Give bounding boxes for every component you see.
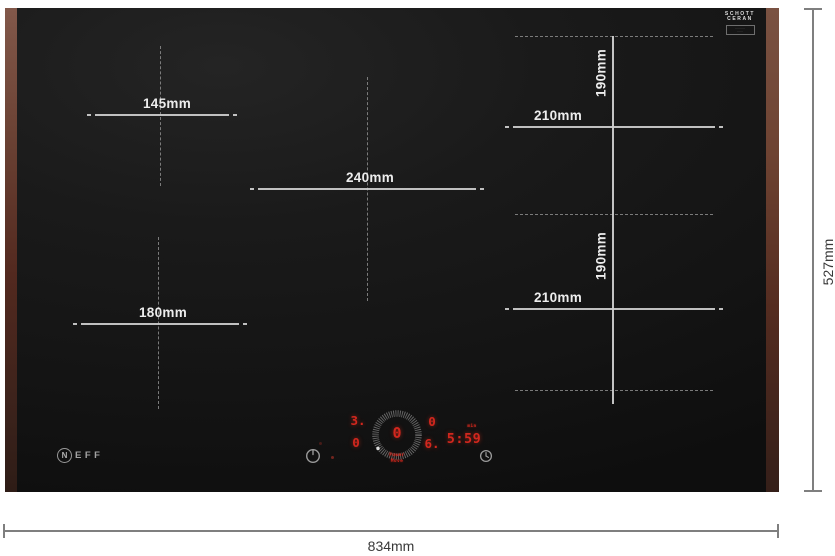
zone-measure-line (258, 188, 476, 190)
flex-zone-top-dashed-line (515, 36, 713, 37)
left-zone-level-top: 3. (345, 414, 371, 427)
neff-logo-text: EFF (75, 450, 103, 461)
flex-top-width-line (513, 126, 715, 128)
dimension-diagram: SCHOTT CERAN ·········· ······ 145mm 180… (0, 0, 835, 556)
left-zone-level-bottom: 0 (343, 436, 369, 449)
left-copper-trim (5, 8, 17, 492)
hob-body: SCHOTT CERAN ·········· ······ 145mm 180… (5, 8, 779, 492)
width-dimension-label: 834mm (341, 538, 441, 554)
dial-caption-line1: Power (373, 453, 421, 459)
zone-size-label: 240mm (346, 170, 394, 185)
flex-top-height-label: 190mm (594, 49, 609, 97)
schott-ceran-badge: SCHOTT CERAN ·········· ······ (720, 12, 760, 35)
flex-zone-height-line (612, 36, 614, 404)
flex-zone-middle-dashed-line (515, 214, 713, 215)
zone-measure-line (95, 114, 229, 116)
flex-top-width-label: 210mm (534, 108, 582, 123)
ceran-text: CERAN (720, 17, 760, 22)
clock-icon (479, 449, 493, 463)
zone-measure-line (81, 323, 239, 325)
flex-bottom-width-label: 210mm (534, 290, 582, 305)
height-dimension-line (812, 8, 814, 492)
right-zone-level-top: 0 (419, 415, 445, 428)
flex-bottom-height-label: 190mm (594, 232, 609, 280)
indicator-dot (319, 442, 322, 445)
timer-unit-label: min (461, 424, 483, 430)
neff-logo-n-icon: N (57, 448, 72, 463)
right-copper-trim (766, 8, 779, 492)
timer-display: 5:59 (441, 432, 487, 446)
width-dimension-line (3, 530, 779, 532)
flex-zone-bottom-dashed-line (515, 390, 713, 391)
power-icon (304, 447, 322, 465)
micro-print-box: ·········· ······ (726, 25, 755, 35)
dial-value-display: 0 (385, 425, 409, 441)
height-dimension-label: 527mm (820, 239, 835, 286)
dial-caption-line2: Move (373, 459, 421, 465)
neff-logo: N EFF (57, 448, 103, 463)
zone-size-label: 180mm (139, 305, 187, 320)
zone-center-dashed-line (160, 46, 161, 186)
flex-bottom-width-line (513, 308, 715, 310)
zone-size-label: 145mm (143, 96, 191, 111)
indicator-dot (331, 456, 334, 459)
